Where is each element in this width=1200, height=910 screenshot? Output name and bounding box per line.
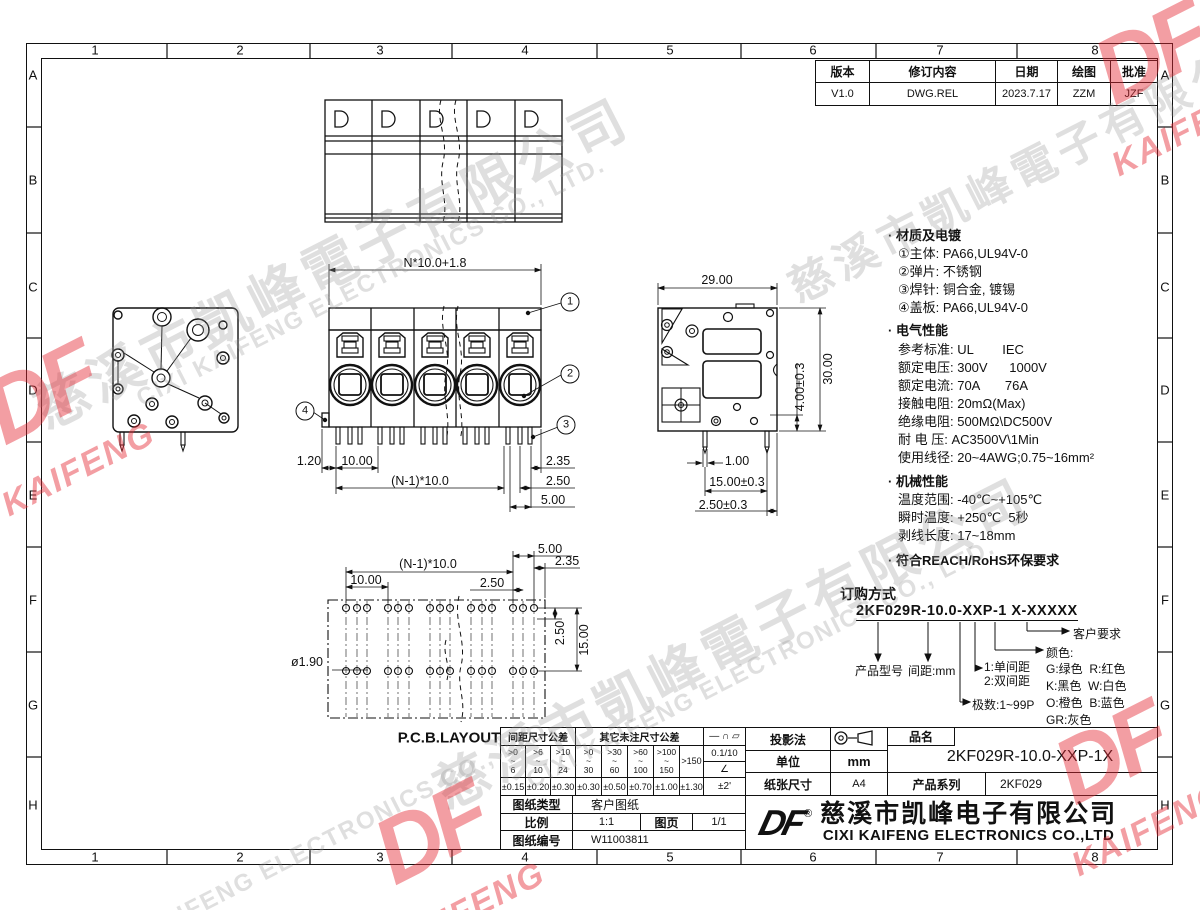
- company-block: DF ® 慈溪市凯峰电子有限公司 CIXI KAIFENG ELECTRONIC…: [746, 796, 1157, 849]
- projection-label: 投影法: [745, 727, 831, 751]
- sheet-value: 1/1: [692, 813, 746, 831]
- tol-value: ±0.15: [500, 777, 526, 796]
- electrical-item: 额定电压: 300V 1000V: [898, 359, 1047, 377]
- tol-value: ±0.20: [525, 777, 551, 796]
- dim-pcb-1500: 15.00: [577, 624, 591, 655]
- electrical-item: 使用线径: 20~4AWG;0.75~16mm²: [898, 449, 1094, 467]
- company-name-cn: 慈溪市凯峰电子有限公司: [820, 801, 1117, 827]
- dim-side-pin: 1.00: [725, 454, 749, 468]
- dim-front-pitch: 10.00: [341, 454, 372, 468]
- ordering-color-row: GR:灰色: [1046, 711, 1091, 728]
- dim-side-1500: 15.00±0.3: [709, 475, 765, 489]
- tol-range: >60 ~ 100: [627, 745, 654, 778]
- dim-pcb-hole: ø1.90: [291, 655, 323, 669]
- product-name-label: 品名: [887, 727, 955, 746]
- revision-approved-by: JZF: [1110, 82, 1158, 106]
- company-name-en: CIXI KAIFENG ELECTRONICS CO.,LTD: [823, 827, 1115, 844]
- ordering-color-row: G:绿色 R:红色: [1046, 660, 1125, 677]
- ordering-title: 订购方式: [840, 584, 896, 604]
- electrical-item: 绝缘电阻: 500MΩ\DC500V: [898, 413, 1052, 431]
- dim-pcb-250v: 2.50: [553, 621, 567, 645]
- sheet-label: 图页: [640, 813, 693, 831]
- tol-value: ±0.30: [550, 777, 576, 796]
- electrical-item: 耐 电 压: AC3500V\1Min: [898, 431, 1039, 449]
- ordering-part-number: 2KF029R-10.0-XXP-1 X-XXXXX: [856, 603, 1078, 621]
- material-item: ①主体: PA66,UL94V-0: [898, 245, 1028, 263]
- revision-version: V1.0: [815, 82, 870, 106]
- tol-range: >6 ~ 10: [525, 745, 551, 778]
- paper-label: 纸张尺寸: [745, 772, 831, 796]
- product-series-value: 2KF029: [985, 772, 1158, 796]
- ordering-poles-label: 极数:1~99P: [972, 696, 1034, 713]
- ordering-color-title: 颜色:: [1046, 644, 1073, 661]
- mechanical-title: · 机械性能: [888, 473, 948, 491]
- top-view: [325, 100, 562, 222]
- tol-range: >150: [679, 745, 704, 778]
- tol-range: >10 ~ 24: [550, 745, 576, 778]
- tol-value: ±0.70: [627, 777, 654, 796]
- tol-value: ±0.30: [575, 777, 602, 796]
- compliance-note: · 符合REACH/RoHS环保要求: [888, 552, 1059, 570]
- front-view-units: [330, 306, 540, 444]
- material-item: ④盖板: PA66,UL94V-0: [898, 299, 1028, 317]
- ordering-model-label: 产品型号: [855, 662, 903, 679]
- dim-side-width: 29.00: [701, 273, 732, 287]
- revision-header: 批准: [1110, 60, 1158, 83]
- electrical-title: · 电气性能: [888, 322, 948, 340]
- dim-front-width: N*10.0+1.8: [404, 256, 467, 270]
- scale-value: 1:1: [572, 813, 641, 831]
- material-title: · 材质及电镀: [888, 227, 961, 245]
- balloon-4: 4: [296, 402, 315, 421]
- ordering-pitch-label: 间距:mm: [908, 662, 955, 679]
- dim-pcb-250t: 2.50: [480, 576, 504, 590]
- tol-pitch-header: 间距尺寸公差: [500, 727, 576, 746]
- drawing-type-label: 图纸类型: [500, 795, 573, 814]
- tol-flatness: 0.1/10: [703, 745, 746, 762]
- dim-side-400: 4.00±0.3: [793, 363, 807, 412]
- mechanical-item: 瞬时温度: +250℃ 5秒: [898, 509, 1029, 527]
- revision-content: DWG.REL: [869, 82, 996, 106]
- drawing-no-value: W11003811: [572, 830, 746, 850]
- material-item: ②弹片: 不锈钢: [898, 263, 982, 281]
- pcb-layout-label: P.C.B.LAYOUT: [398, 730, 501, 747]
- drawing-type-value: 客户图纸: [572, 795, 746, 814]
- right-side-view: [658, 304, 777, 453]
- tol-angle-symbol: ∠: [703, 761, 746, 778]
- scale-label: 比例: [500, 813, 573, 831]
- projection-symbol-cell: [830, 727, 888, 751]
- balloon-2: 2: [561, 365, 580, 384]
- tol-value: ±0.50: [601, 777, 628, 796]
- revision-header: 版本: [815, 60, 870, 83]
- dim-front-500: 5.00: [541, 493, 565, 507]
- pcb-layout: [328, 596, 545, 722]
- dim-front-offset: 1.20: [297, 454, 321, 468]
- dim-front-235: 2.35: [546, 454, 570, 468]
- balloon-3: 3: [557, 416, 576, 435]
- dim-front-span: (N-1)*10.0: [391, 474, 449, 488]
- company-logo: DF: [755, 802, 807, 844]
- projection-symbol: [831, 728, 877, 748]
- electrical-item: 接触电阻: 20mΩ(Max): [898, 395, 1025, 413]
- balloon-1: 1: [561, 293, 580, 312]
- tol-value: ±1.30: [679, 777, 704, 796]
- dim-side-height: 30.00: [821, 353, 835, 384]
- tol-range: >100 ~ 150: [653, 745, 680, 778]
- mechanical-item: 温度范围: -40℃~+105℃: [898, 491, 1042, 509]
- drawing-sheet: 1 2 3 4 5 6 7 8 1 2 3 4 5 6 7 8 A B C D …: [0, 0, 1200, 910]
- tol-angle-value: ±2': [703, 777, 746, 796]
- dim-side-250: 2.50±0.3: [699, 498, 748, 512]
- paper-value: A4: [830, 772, 888, 796]
- ordering-customer-label: 客户要求: [1073, 625, 1121, 642]
- tol-range: >0 ~ 30: [575, 745, 602, 778]
- ordering-color-row: O:橙色 B:蓝色: [1046, 694, 1125, 711]
- ordering-connectors: [875, 622, 1069, 705]
- material-item: ③焊针: 铜合金, 镀锡: [898, 281, 1015, 299]
- tol-range: >0 ~ 6: [500, 745, 526, 778]
- dim-pcb-235: 2.35: [555, 554, 579, 568]
- mechanical-item: 剥线长度: 17~18mm: [898, 527, 1015, 545]
- tol-other-header: 其它未注尺寸公差: [575, 727, 704, 746]
- tol-symbols: — ∩ ▱: [703, 727, 746, 746]
- unit-value: mm: [830, 750, 888, 773]
- revision-drawn-by: ZZM: [1057, 82, 1111, 106]
- revision-date: 2023.7.17: [995, 82, 1058, 106]
- revision-header: 修订内容: [869, 60, 996, 83]
- left-side-view: [112, 308, 238, 451]
- product-series-label: 产品系列: [887, 772, 986, 796]
- electrical-item: 参考标准: UL IEC: [898, 341, 1024, 359]
- ordering-color-row: K:黑色 W:白色: [1046, 677, 1126, 694]
- drawing-no-label: 图纸编号: [500, 830, 573, 850]
- unit-label: 单位: [745, 750, 831, 773]
- tol-value: ±1.00: [653, 777, 680, 796]
- dim-front-250: 2.50: [546, 474, 570, 488]
- dim-pcb-pitch: 10.00: [350, 573, 381, 587]
- electrical-item: 额定电流: 70A 76A: [898, 377, 1028, 395]
- product-name-value: 2KF029R-10.0-XXP-1X: [947, 748, 1113, 766]
- revision-header: 绘图: [1057, 60, 1111, 83]
- tol-range: >30 ~ 60: [601, 745, 628, 778]
- revision-header: 日期: [995, 60, 1058, 83]
- dim-pcb-span: (N-1)*10.0: [399, 557, 457, 571]
- ordering-double-label: 2:双间距: [984, 672, 1030, 689]
